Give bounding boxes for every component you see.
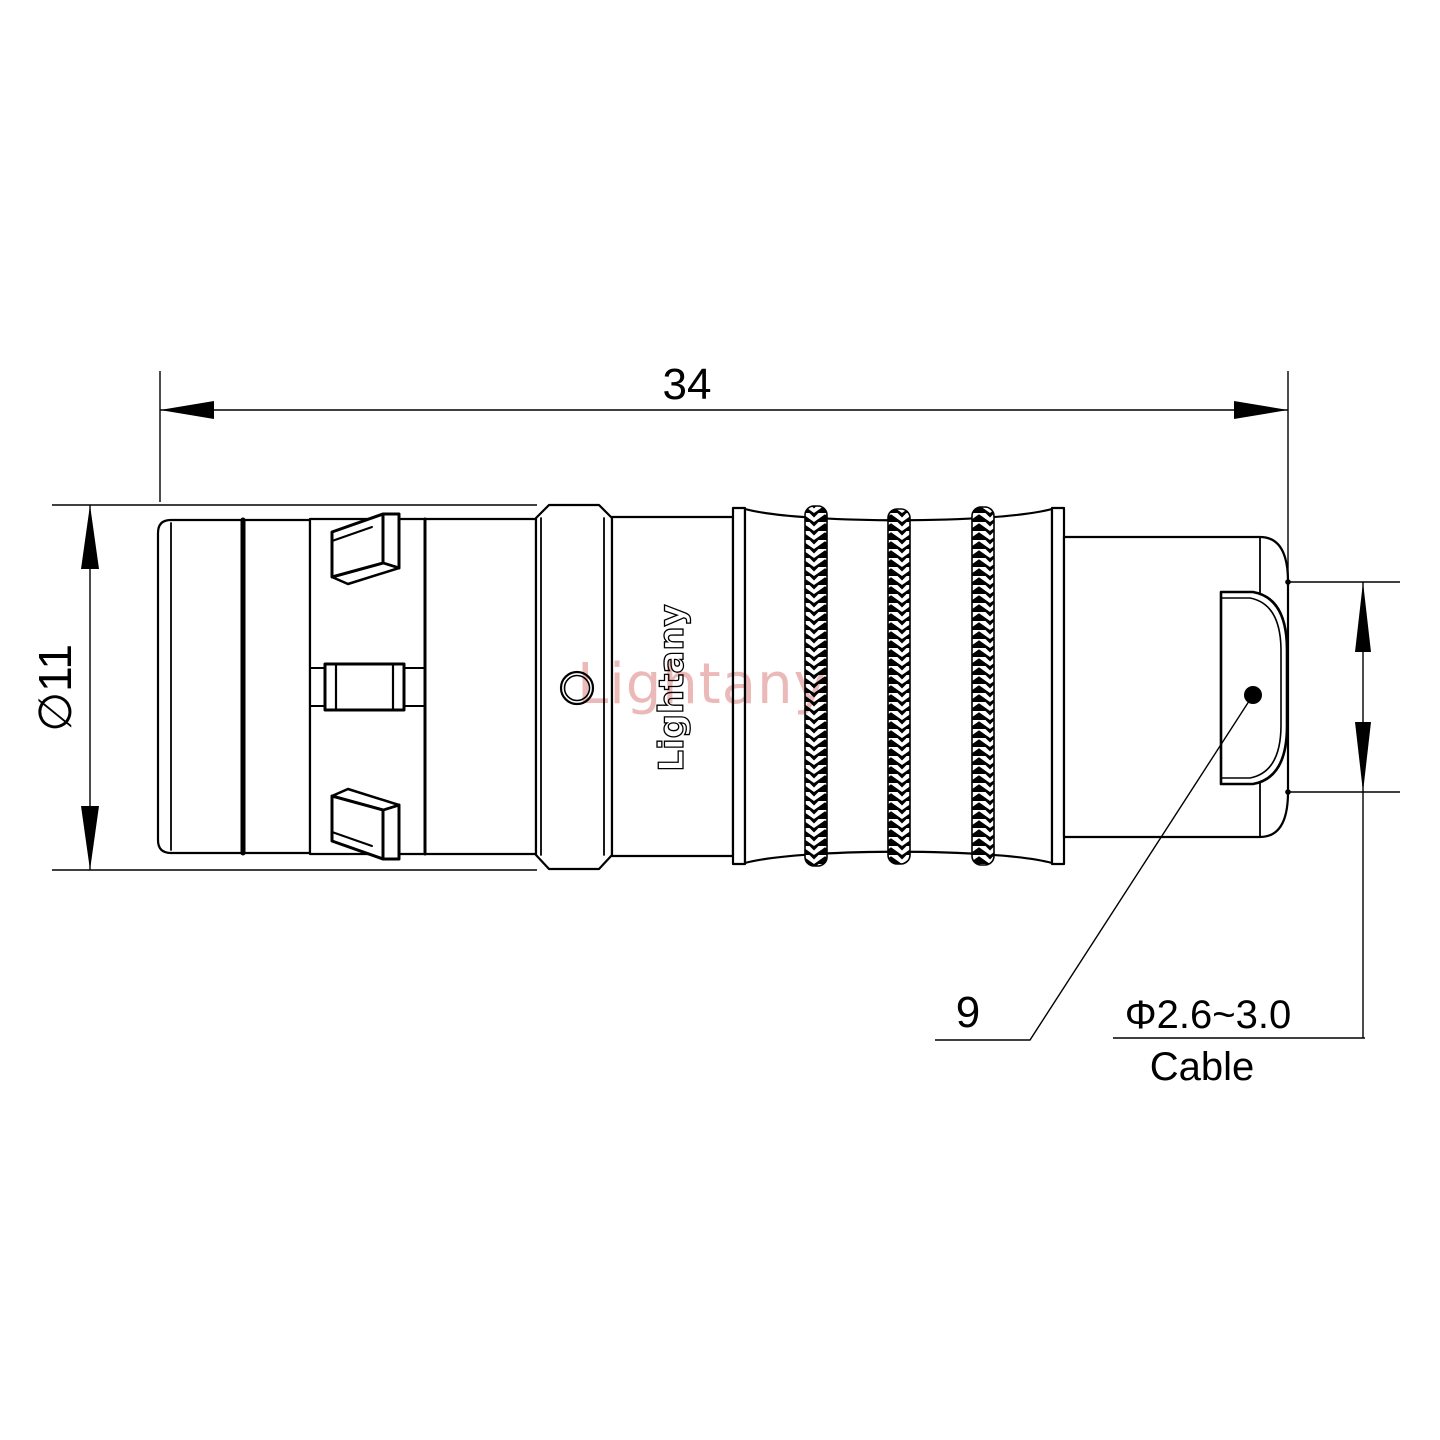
arrowhead-right-icon [1234, 401, 1288, 419]
latch-bottom-bar [383, 805, 399, 859]
arrowhead-down-icon [1355, 722, 1371, 792]
dim-cable-type-label: Cable [1150, 1045, 1255, 1089]
knurl-band [888, 509, 910, 864]
watermark-text: Lightany [577, 652, 828, 717]
dim-cable-diameter-value: Φ2.6~3.0 [1125, 993, 1291, 1037]
grip-ring-right [1052, 508, 1064, 864]
dim-overall-length-value: 34 [663, 360, 712, 409]
arrowhead-left-icon [160, 401, 214, 419]
extension-junction-dot [1285, 789, 1291, 795]
rear-shell [158, 520, 310, 853]
arrowhead-up-icon [81, 505, 99, 569]
latch-top-bar [383, 514, 399, 568]
arrowhead-down-icon [81, 806, 99, 870]
technical-drawing-connector: Lightany 34 ∅11 [0, 0, 1440, 1440]
arrowhead-up-icon [1355, 582, 1371, 652]
leader-backshell-value: 9 [956, 988, 980, 1037]
knurl-band [972, 507, 994, 865]
dim-outer-diameter-value: ∅11 [29, 644, 81, 732]
extension-junction-dot [1285, 579, 1291, 585]
